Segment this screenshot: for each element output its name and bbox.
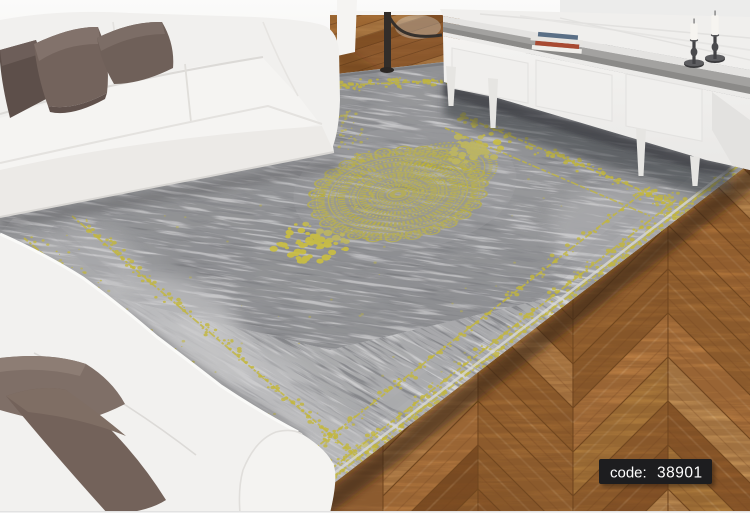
svg-text:38901: 38901 [657, 465, 703, 482]
svg-text:code:: code: [610, 465, 647, 482]
